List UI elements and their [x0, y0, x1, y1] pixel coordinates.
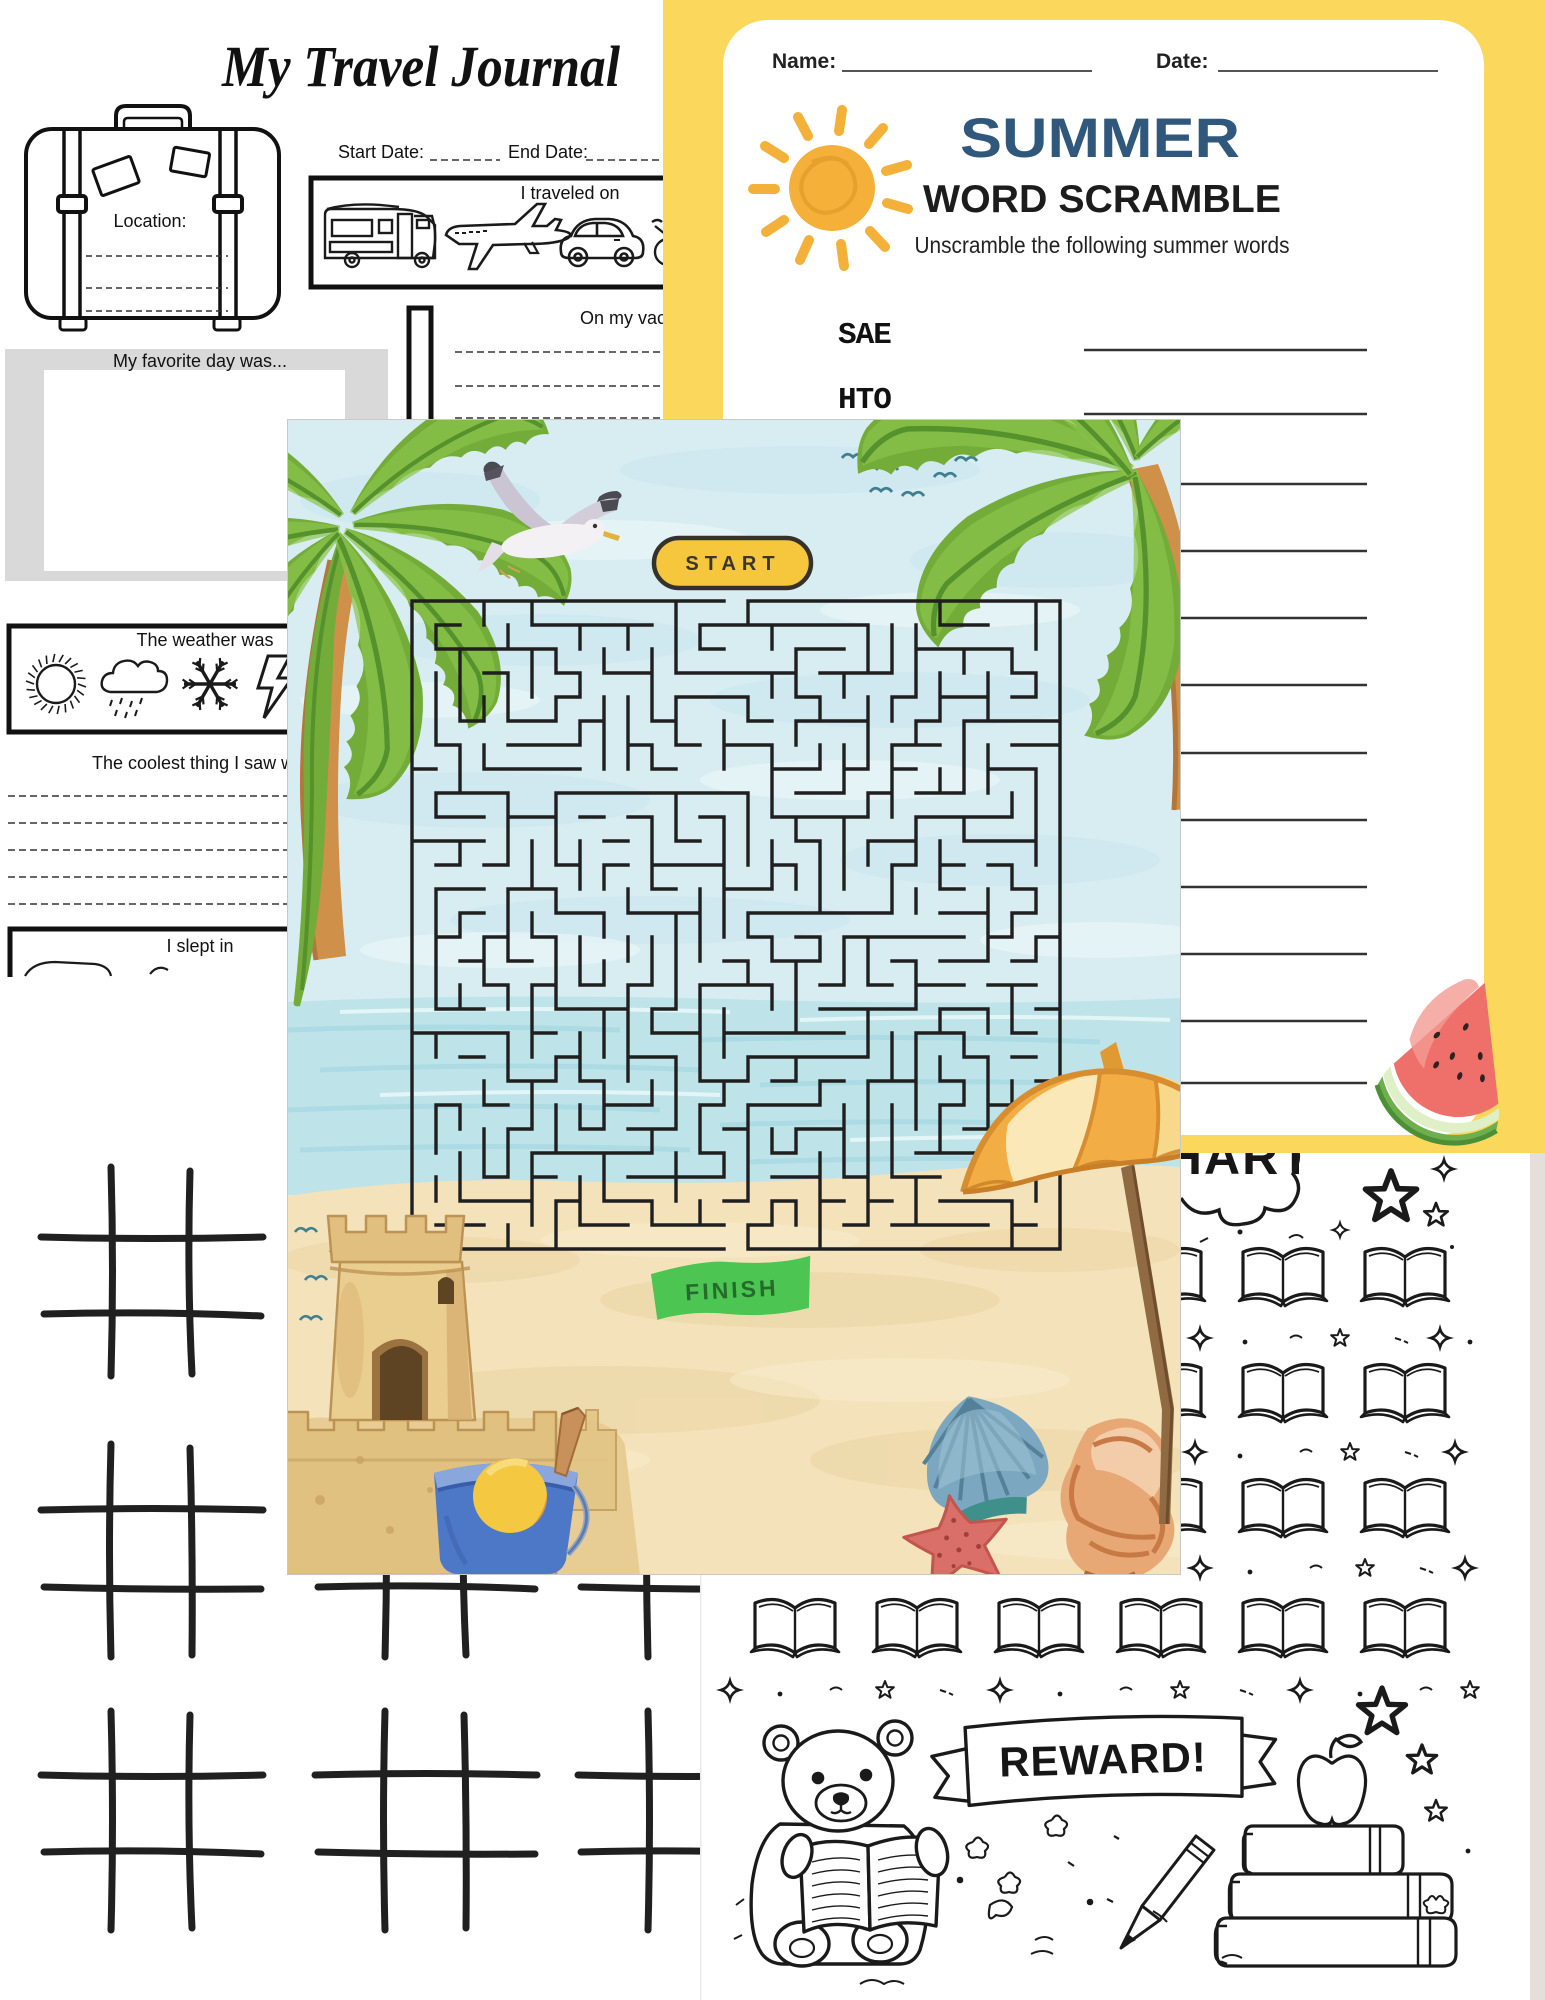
svg-text:START: START [685, 553, 780, 575]
svg-text:FINISH: FINISH [685, 1274, 780, 1305]
